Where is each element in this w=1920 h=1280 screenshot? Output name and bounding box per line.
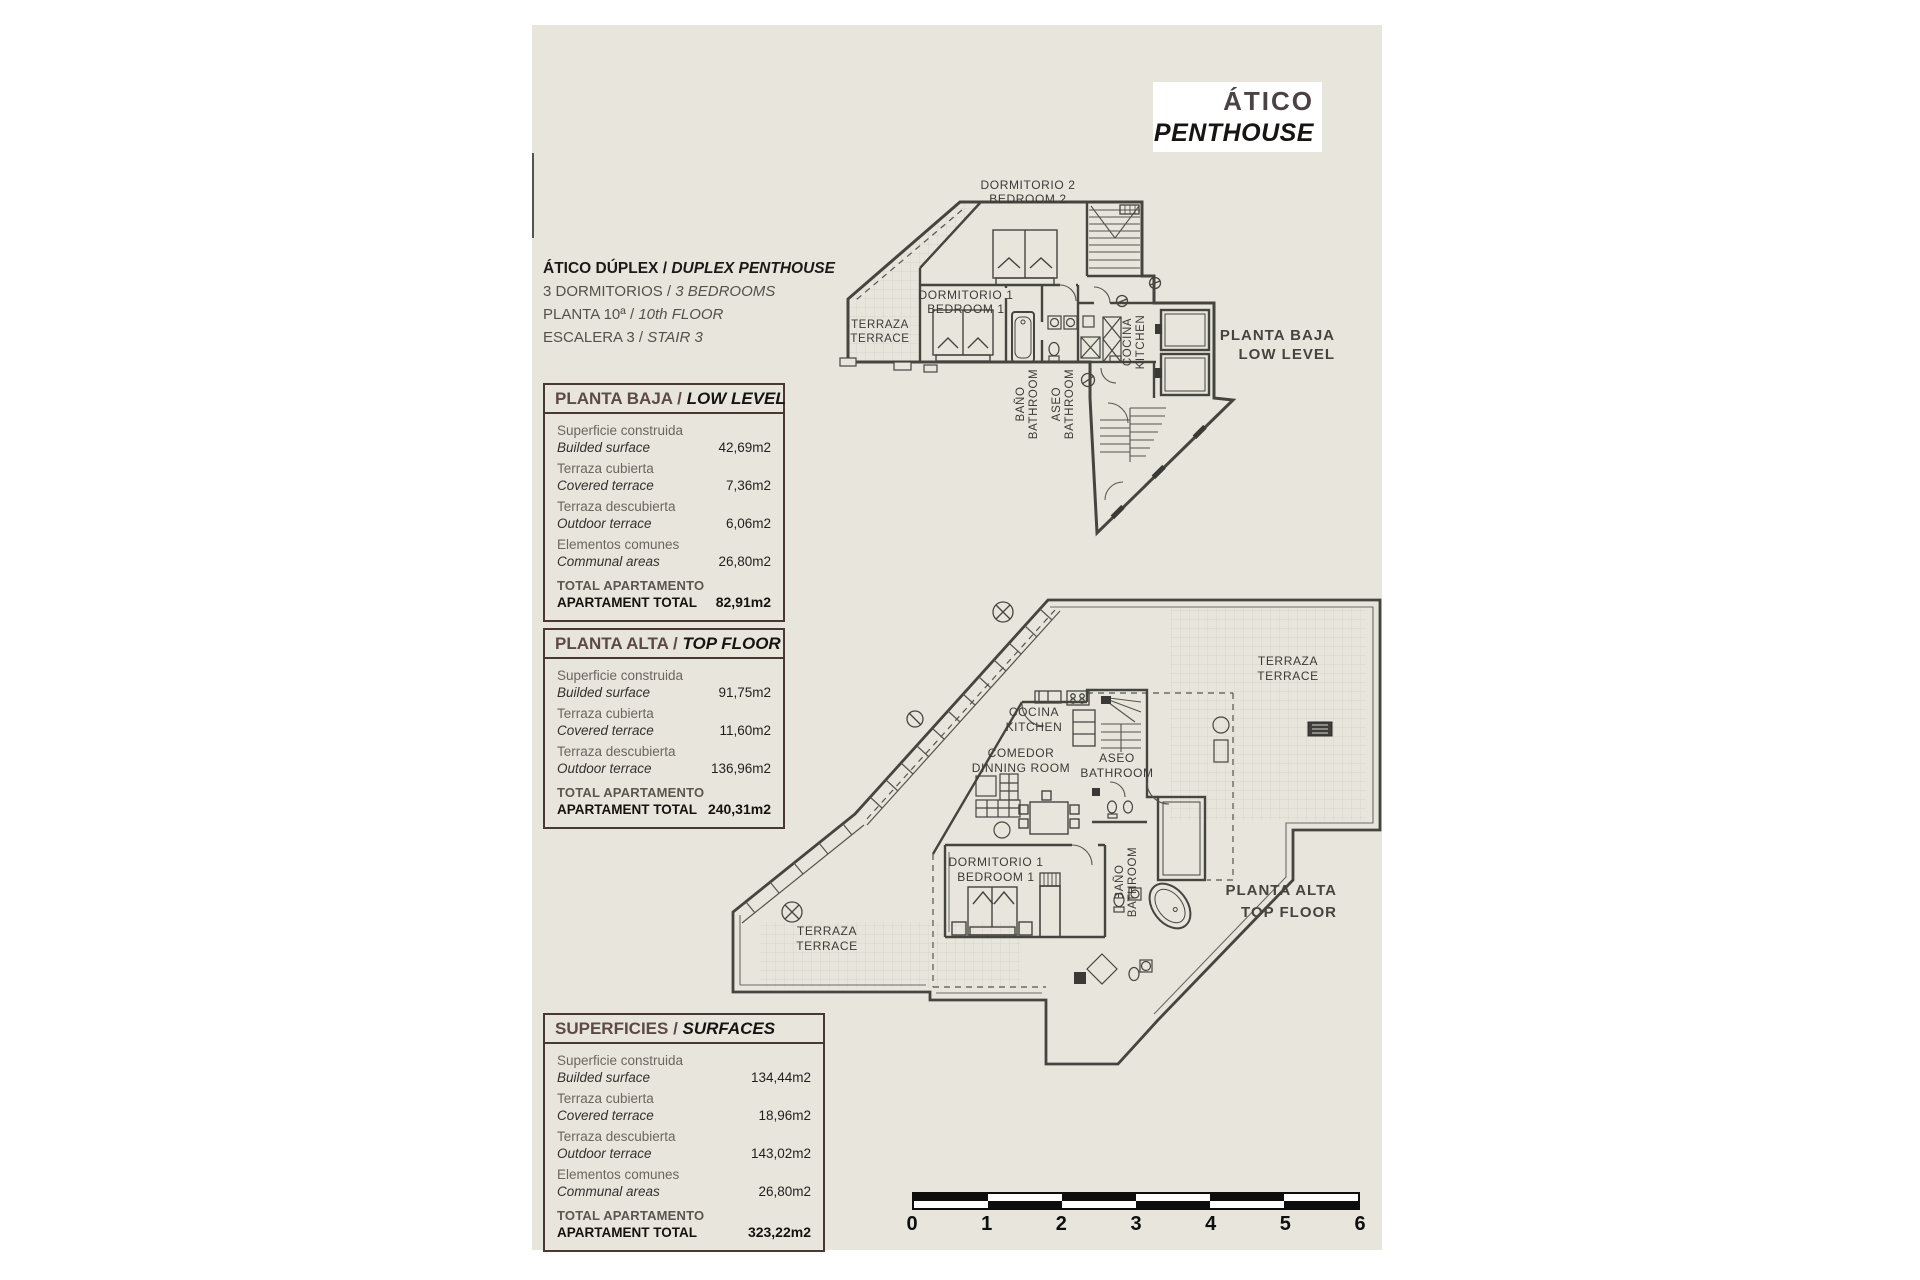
staircase-upper: [1089, 206, 1140, 268]
label-terrace-top-en: TERRACE: [1257, 669, 1319, 683]
terrace-hatch-right: [1170, 608, 1366, 820]
label-bath-en: BATHROOM: [1127, 847, 1139, 917]
scale-bar: 0 1 2 3 4 5 6: [912, 1192, 1360, 1238]
surface-row: Terraza descubiertaOutdoor terrace6,06m2: [557, 499, 771, 532]
description-line: ESCALERA 3 / STAIR 3: [543, 326, 843, 349]
page: ÁTICO PENTHOUSE ÁTICO DÚPLEX / DUPLEX PE…: [0, 0, 1920, 1280]
label-bath: BAÑO: [1014, 387, 1027, 422]
label-bedroom1-en: BEDROOM 1: [957, 870, 1034, 884]
label-bedroom2: DORMITORIO 2: [981, 178, 1076, 192]
label-bedroom1: DORMITORIO 1: [949, 855, 1044, 869]
surface-row: Terraza cubiertaCovered terrace18,96m2: [557, 1091, 811, 1124]
terrace-grill-icon: [1308, 722, 1332, 736]
staircase: [1101, 696, 1141, 752]
floorplan-sheet: ÁTICO PENTHOUSE ÁTICO DÚPLEX / DUPLEX PE…: [532, 25, 1382, 1250]
oval-bathtub-icon: [1141, 876, 1199, 936]
label-dining-en: DINNING ROOM: [972, 761, 1071, 775]
unit-description: ÁTICO DÚPLEX / DUPLEX PENTHOUSE 3 DORMIT…: [543, 257, 843, 349]
staircase-lower: [1100, 403, 1166, 500]
scale-tick: 4: [1199, 1213, 1223, 1236]
scale-tick: 5: [1273, 1213, 1297, 1236]
label-aseo: ASEO: [1099, 751, 1135, 765]
description-line: 3 DORMITORIOS / 3 BEDROOMS: [543, 280, 843, 303]
label-plan-name: PLANTA ALTA: [1225, 882, 1337, 899]
sofa-modules: [976, 774, 1020, 838]
label-aseo: ASEO: [1051, 387, 1063, 421]
description-line: ÁTICO DÚPLEX / DUPLEX PENTHOUSE: [543, 257, 843, 280]
label-plan-name: PLANTA BAJA: [1220, 327, 1335, 344]
label-bedroom1: DORMITORIO 1: [919, 288, 1014, 302]
label-dining: COMEDOR: [988, 746, 1055, 760]
label-bedroom2-en: BEDROOM 2: [989, 192, 1066, 206]
surface-row: Terraza descubiertaOutdoor terrace143,02…: [557, 1129, 811, 1162]
label-bedroom1-en: BEDROOM 1: [927, 302, 1004, 316]
bathroom-fixtures: [1048, 316, 1100, 361]
floorplan-top-floor: TERRAZA TERRACE COCINA KITCHEN COMEDOR D…: [730, 592, 1382, 1082]
label-terrace-en: TERRACE: [850, 333, 909, 345]
surface-total-row: TOTAL APARTAMENTOAPARTAMENT TOTAL323,22m…: [557, 1208, 811, 1241]
label-aseo-en: BATHROOM: [1080, 766, 1153, 780]
label-kitchen: COCINA: [1009, 705, 1059, 719]
scale-tick: 6: [1348, 1213, 1372, 1236]
label-plan-name-en: TOP FLOOR: [1241, 904, 1337, 921]
bathroom-fixtures: [1074, 788, 1152, 984]
label-terrace: TERRAZA: [851, 319, 909, 331]
label-aseo-en: BATHROOM: [1064, 369, 1076, 439]
label-plan-name-en: LOW LEVEL: [1239, 346, 1336, 363]
surface-row: Superficie construidaBuilded surface42,6…: [557, 423, 771, 456]
scale-tick: 2: [1049, 1213, 1073, 1236]
label-kitchen: COCINA: [1122, 318, 1134, 366]
kitchen-cabinets: [1103, 317, 1121, 362]
scale-bar-cells: [912, 1192, 1360, 1210]
label-terrace-bottom: TERRAZA: [797, 924, 857, 938]
title-en: PENTHOUSE: [1154, 117, 1314, 149]
surface-row: Elementos comunesCommunal areas26,80m2: [557, 1167, 811, 1200]
label-bath-en: BATHROOM: [1028, 369, 1040, 439]
description-line: PLANTA 10ª / 10th FLOOR: [543, 303, 843, 326]
bed-2: [993, 230, 1057, 285]
scale-tick: 0: [900, 1213, 924, 1236]
surface-row: Elementos comunesCommunal areas26,80m2: [557, 537, 771, 570]
scale-tick: 3: [1124, 1213, 1148, 1236]
area-box-header: PLANTA BAJA / LOW LEVEL: [545, 385, 783, 414]
surface-row: Terraza cubiertaCovered terrace7,36m2: [557, 461, 771, 494]
label-kitchen-en: KITCHEN: [1135, 315, 1147, 370]
label-bath: BAÑO: [1113, 865, 1126, 900]
page-title: ÁTICO PENTHOUSE: [1153, 82, 1322, 152]
bed-1: [933, 310, 993, 361]
elevator-shafts: [1155, 310, 1209, 395]
floorplan-low-level: DORMITORIO 2 BEDROOM 2 TERRAZA TERRACE D…: [838, 172, 1358, 572]
area-box-low-level: PLANTA BAJA / LOW LEVEL Superficie const…: [543, 383, 785, 622]
page-edge-mark: [532, 153, 534, 238]
label-kitchen-en: KITCHEN: [1006, 720, 1063, 734]
label-terrace-top: TERRAZA: [1258, 654, 1318, 668]
label-terrace-bottom-en: TERRACE: [796, 939, 858, 953]
scale-tick: 1: [975, 1213, 999, 1236]
title-es: ÁTICO: [1223, 85, 1314, 117]
bathtub-icon: [1012, 312, 1034, 362]
dining-table: [1019, 791, 1079, 834]
wardrobe: [1040, 873, 1060, 937]
